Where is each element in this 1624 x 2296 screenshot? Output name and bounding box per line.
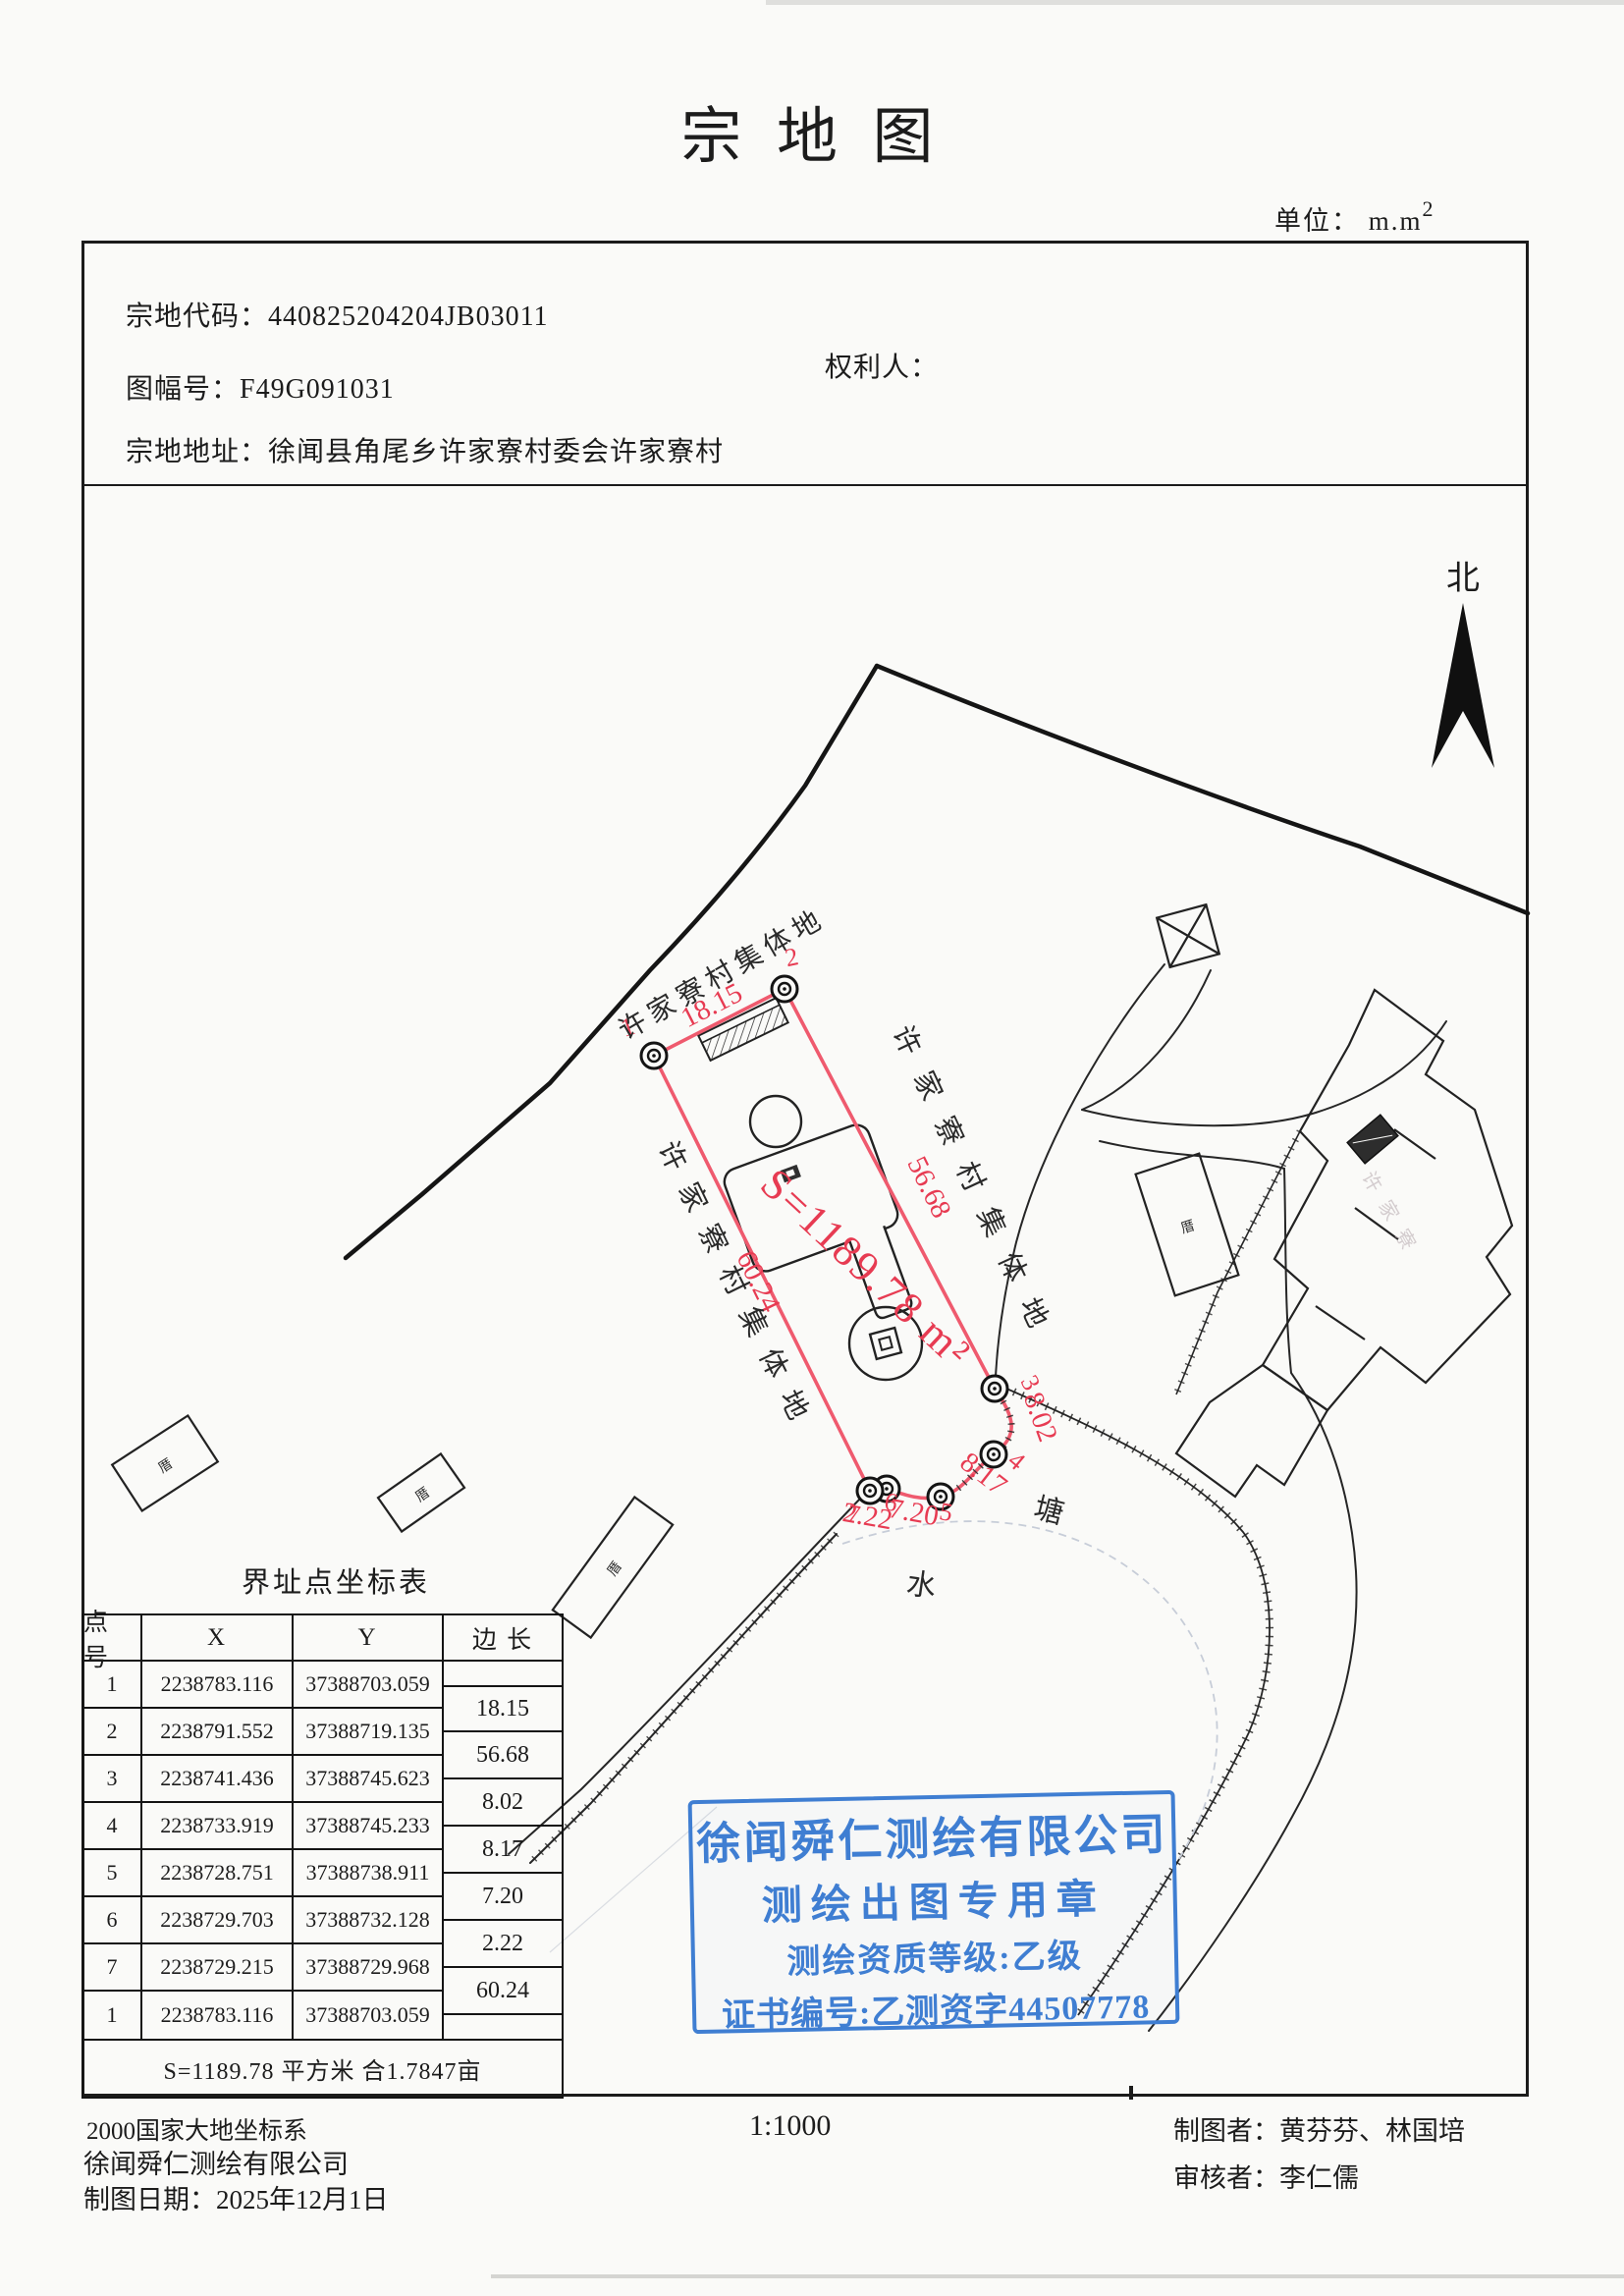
col-header-point: 点 号 [83, 1615, 142, 1662]
cell-x: 2238741.436 [142, 1756, 294, 1803]
house-char-1: 厝 [156, 1456, 176, 1476]
cell-x: 2238729.703 [142, 1897, 294, 1944]
footer-crs: 2000国家大地坐标系 [86, 2111, 307, 2147]
cell-x: 2238791.552 [142, 1709, 294, 1756]
edge-cell: 56.68 [444, 1732, 562, 1779]
cell-no: 5 [83, 1850, 142, 1897]
footer-reviewer-line: 审核者：李仁儒 [1173, 2157, 1359, 2195]
frame-tick [1129, 2086, 1133, 2100]
cell-x: 2238783.116 [142, 1662, 294, 1709]
edge-cell: 8.17 [444, 1827, 562, 1874]
cell-x: 2238729.215 [142, 1944, 294, 1992]
cell-x: 2238733.919 [142, 1803, 294, 1850]
edge-cell: 60.24 [444, 1968, 562, 2015]
survey-company-stamp: 徐闻舜仁测绘有限公司 测绘出图专用章 测绘资质等级:乙级 证书编号:乙测资字44… [688, 1790, 1180, 2034]
boundary-point-table: 点 号 X Y 边 长 12238783.11637388703.059 222… [81, 1613, 564, 2099]
table-summary: S=1189.78 平方米 合1.7847亩 [83, 2039, 562, 2097]
edge-cell: 7.20 [444, 1874, 562, 1921]
cell-no: 7 [83, 1944, 142, 1992]
footer-drafter-line: 制图者：黄芬芬、林国培 [1173, 2109, 1465, 2148]
edge-cell: 18.15 [444, 1685, 562, 1732]
cell-x: 2238728.751 [142, 1850, 294, 1897]
cell-y: 37388738.911 [294, 1850, 444, 1897]
reviewer-value: 李仁儒 [1279, 2163, 1359, 2193]
cell-y: 37388732.128 [294, 1897, 444, 1944]
cell-no: 1 [83, 1662, 142, 1709]
edge-length-column: 18.1556.688.028.177.202.2260.24 [444, 1662, 562, 2039]
cell-no: 2 [83, 1709, 142, 1756]
drafter-value: 黄芬芬、林国培 [1279, 2116, 1465, 2146]
stamp-qualification: 测绘资质等级:乙级 [694, 1927, 1174, 1985]
drafter-label: 制图者： [1173, 2116, 1279, 2146]
round-structure [750, 1096, 801, 1147]
house-char-2: 厝 [413, 1486, 433, 1505]
cell-no: 6 [83, 1897, 142, 1944]
footer-date-value: 2025年12月1日 [216, 2185, 389, 2214]
crossed-box-symbol [1157, 904, 1219, 967]
north-label: 北 [1446, 561, 1480, 597]
cell-y: 37388745.233 [294, 1803, 444, 1850]
stamp-company-name: 徐闻舜仁测绘有限公司 [692, 1798, 1172, 1872]
col-header-x: X [142, 1615, 294, 1662]
col-header-edge: 边 长 [444, 1615, 562, 1662]
north-arrow: 北 [1432, 561, 1494, 768]
building-cluster [1176, 990, 1512, 1497]
cell-no: 1 [83, 1992, 142, 2039]
pond-char-tang: 塘 [1031, 1492, 1067, 1530]
pond-char-shui: 水 [904, 1567, 938, 1604]
reviewer-label: 审核者： [1173, 2163, 1279, 2193]
table-body: 12238783.11637388703.059 22238791.552373… [83, 1662, 444, 2039]
stamp-certificate-no: 证书编号:乙测资字44507778 [696, 1979, 1176, 2037]
coordinate-table-title: 界址点坐标表 [242, 1559, 430, 1601]
footer-date-line: 制图日期：2025年12月1日 [83, 2178, 389, 2216]
edge-label-8-02: 8.02 [1017, 1389, 1063, 1447]
cell-x: 2238783.116 [142, 1992, 294, 2039]
cell-y: 37388745.623 [294, 1756, 444, 1803]
cell-no: 4 [83, 1803, 142, 1850]
stamp-purpose: 测绘出图专用章 [693, 1864, 1173, 1933]
house-char-4: 厝 [1179, 1219, 1197, 1237]
cell-no: 3 [83, 1756, 142, 1803]
north-arrow-glyph [1432, 603, 1494, 768]
map-scale: 1:1000 [749, 2109, 831, 2143]
dark-hatched-structure [1347, 1115, 1398, 1164]
edge-cell: 8.02 [444, 1779, 562, 1827]
col-header-y: Y [294, 1615, 444, 1662]
cell-y: 37388703.059 [294, 1992, 444, 2039]
parcel-map-sheet: 宗 地 图 单位： m.m2 宗地代码：440825204204JB03011 … [0, 0, 1624, 2296]
cell-y: 37388729.968 [294, 1944, 444, 1992]
footer-date-label: 制图日期： [83, 2185, 216, 2214]
cell-y: 37388703.059 [294, 1662, 444, 1709]
edge-cell: 2.22 [444, 1921, 562, 1968]
table-header-row: 点 号 X Y 边 长 [83, 1615, 562, 1662]
house-char-3: 厝 [606, 1559, 625, 1579]
footer-company: 徐闻舜仁测绘有限公司 [83, 2143, 349, 2181]
cell-y: 37388719.135 [294, 1709, 444, 1756]
